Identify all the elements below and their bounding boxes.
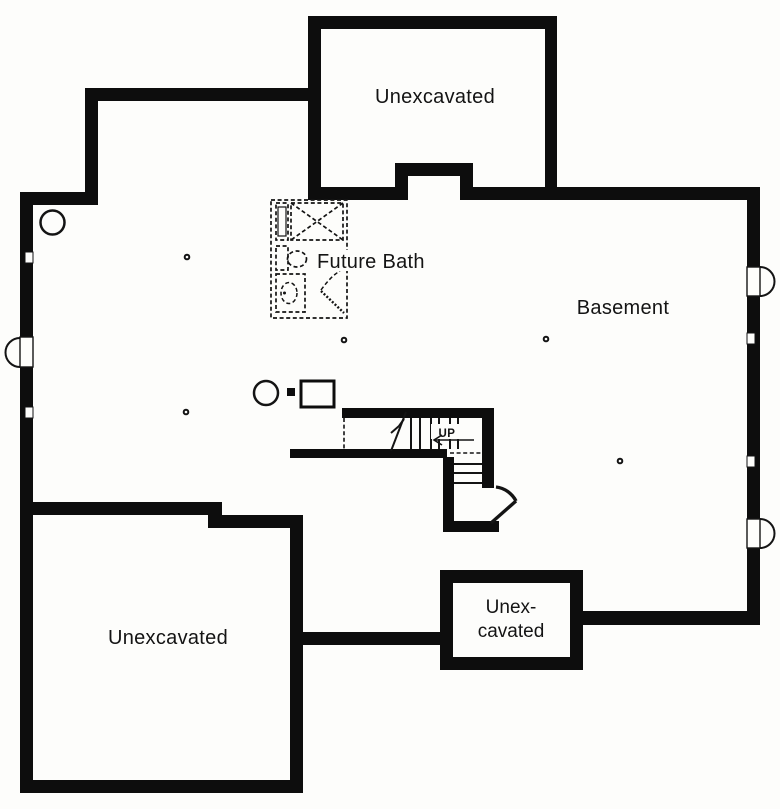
stair-treads-lower xyxy=(454,464,482,483)
wall-basement-top-left xyxy=(308,187,395,200)
label-unexcavated-bottom-left: Unexcavated xyxy=(108,627,228,649)
label-unexcavated-top: Unexcavated xyxy=(375,86,495,108)
toilet-icon xyxy=(276,246,307,270)
label-unexcavated-small-line1: Unex- xyxy=(486,597,537,618)
left-window-arc-icon xyxy=(6,338,21,367)
wall-alcove-right xyxy=(460,163,473,200)
wall-stair-landing-bottom xyxy=(443,521,499,532)
label-basement: Basement xyxy=(577,297,670,319)
left-wall-notch-lower xyxy=(25,407,33,418)
wall-basement-bottom-right xyxy=(570,611,760,625)
wall-bottom-stub xyxy=(297,632,453,645)
right-window-lower-arc-icon xyxy=(760,519,775,548)
wall-stair-landing-left xyxy=(443,457,454,532)
wall-small-room-top xyxy=(440,570,583,583)
right-window-upper xyxy=(747,267,760,296)
left-wall-notch-upper xyxy=(25,252,33,263)
wall-small-room-bottom xyxy=(440,657,583,670)
right-window-upper-arc-icon xyxy=(760,267,775,296)
left-window xyxy=(20,337,33,367)
stair-landing-door-icon xyxy=(491,487,516,523)
basement-floor-plan: UP xyxy=(0,0,780,809)
shower-icon xyxy=(291,203,343,240)
wall-upper-left-horizontal xyxy=(85,88,308,101)
wall-basement-top-right xyxy=(473,187,760,200)
wall-top-room-top xyxy=(308,16,557,29)
wall-stair-top xyxy=(342,408,492,418)
column-circle-icon xyxy=(254,381,278,405)
structural-symbols xyxy=(41,211,623,464)
wall-stair-right xyxy=(482,408,494,488)
label-future-bath: Future Bath xyxy=(317,251,425,273)
equipment-square-icon xyxy=(301,381,334,407)
wall-small-room-right xyxy=(570,570,583,670)
plumbing-chase-icon xyxy=(276,203,288,240)
exterior-walls xyxy=(20,16,760,793)
wall-top-room-left xyxy=(308,16,321,200)
wall-small-room-left xyxy=(440,570,453,670)
right-wall-notch-lower xyxy=(747,456,755,467)
room-labels: Unexcavated Basement Future Bath Unexcav… xyxy=(108,86,669,649)
wall-left-exterior xyxy=(20,192,33,793)
wall-bl-room-bottom xyxy=(22,780,303,793)
wall-stair-halfwall xyxy=(290,449,447,458)
floor-plan-canvas: UP xyxy=(0,0,780,809)
wall-bl-room-top-a xyxy=(22,502,222,515)
wall-bl-room-top-b xyxy=(208,515,303,528)
stair-up-label: UP xyxy=(439,428,456,440)
right-window-lower xyxy=(747,519,760,548)
future-door-icon xyxy=(321,271,344,313)
sink-icon xyxy=(276,274,305,312)
label-unexcavated-small-line2: cavated xyxy=(478,621,545,642)
wall-right-exterior xyxy=(747,187,760,625)
right-wall-notch-upper xyxy=(747,333,755,344)
column-dot-icons xyxy=(184,255,623,464)
wall-top-room-right xyxy=(545,16,557,200)
wall-bl-room-right xyxy=(290,515,303,793)
wall-upper-left-vertical xyxy=(85,88,98,205)
post-square-icon xyxy=(287,388,295,396)
column-circle-icon xyxy=(41,211,65,235)
